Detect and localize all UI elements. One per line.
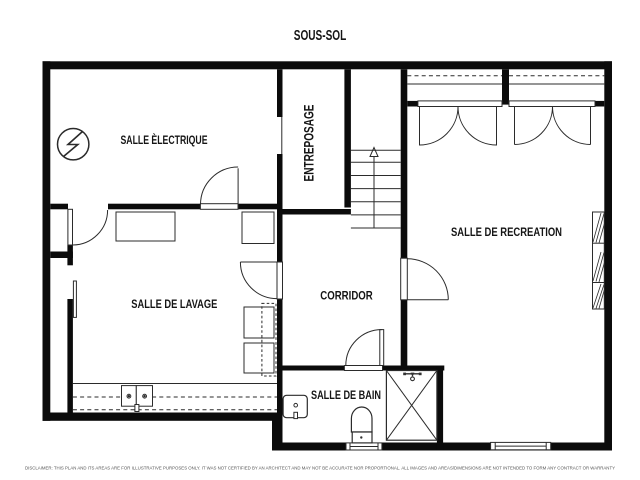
svg-text:SALLE DE RECREATION: SALLE DE RECREATION [451, 225, 562, 239]
svg-text:DISCLAIMER: THIS PLAN AND ITS: DISCLAIMER: THIS PLAN AND ITS AREAS ARE … [25, 466, 615, 471]
svg-text:SALLE DE LAVAGE: SALLE DE LAVAGE [131, 297, 217, 311]
svg-text:SALLE ÈLECTRIQUE: SALLE ÈLECTRIQUE [121, 132, 208, 147]
svg-text:ENTREPOSAGE: ENTREPOSAGE [301, 105, 317, 182]
svg-text:CORRIDOR: CORRIDOR [320, 289, 373, 303]
svg-text:SALLE DE BAIN: SALLE DE BAIN [311, 388, 381, 402]
svg-text:SOUS-SOL: SOUS-SOL [294, 28, 347, 44]
